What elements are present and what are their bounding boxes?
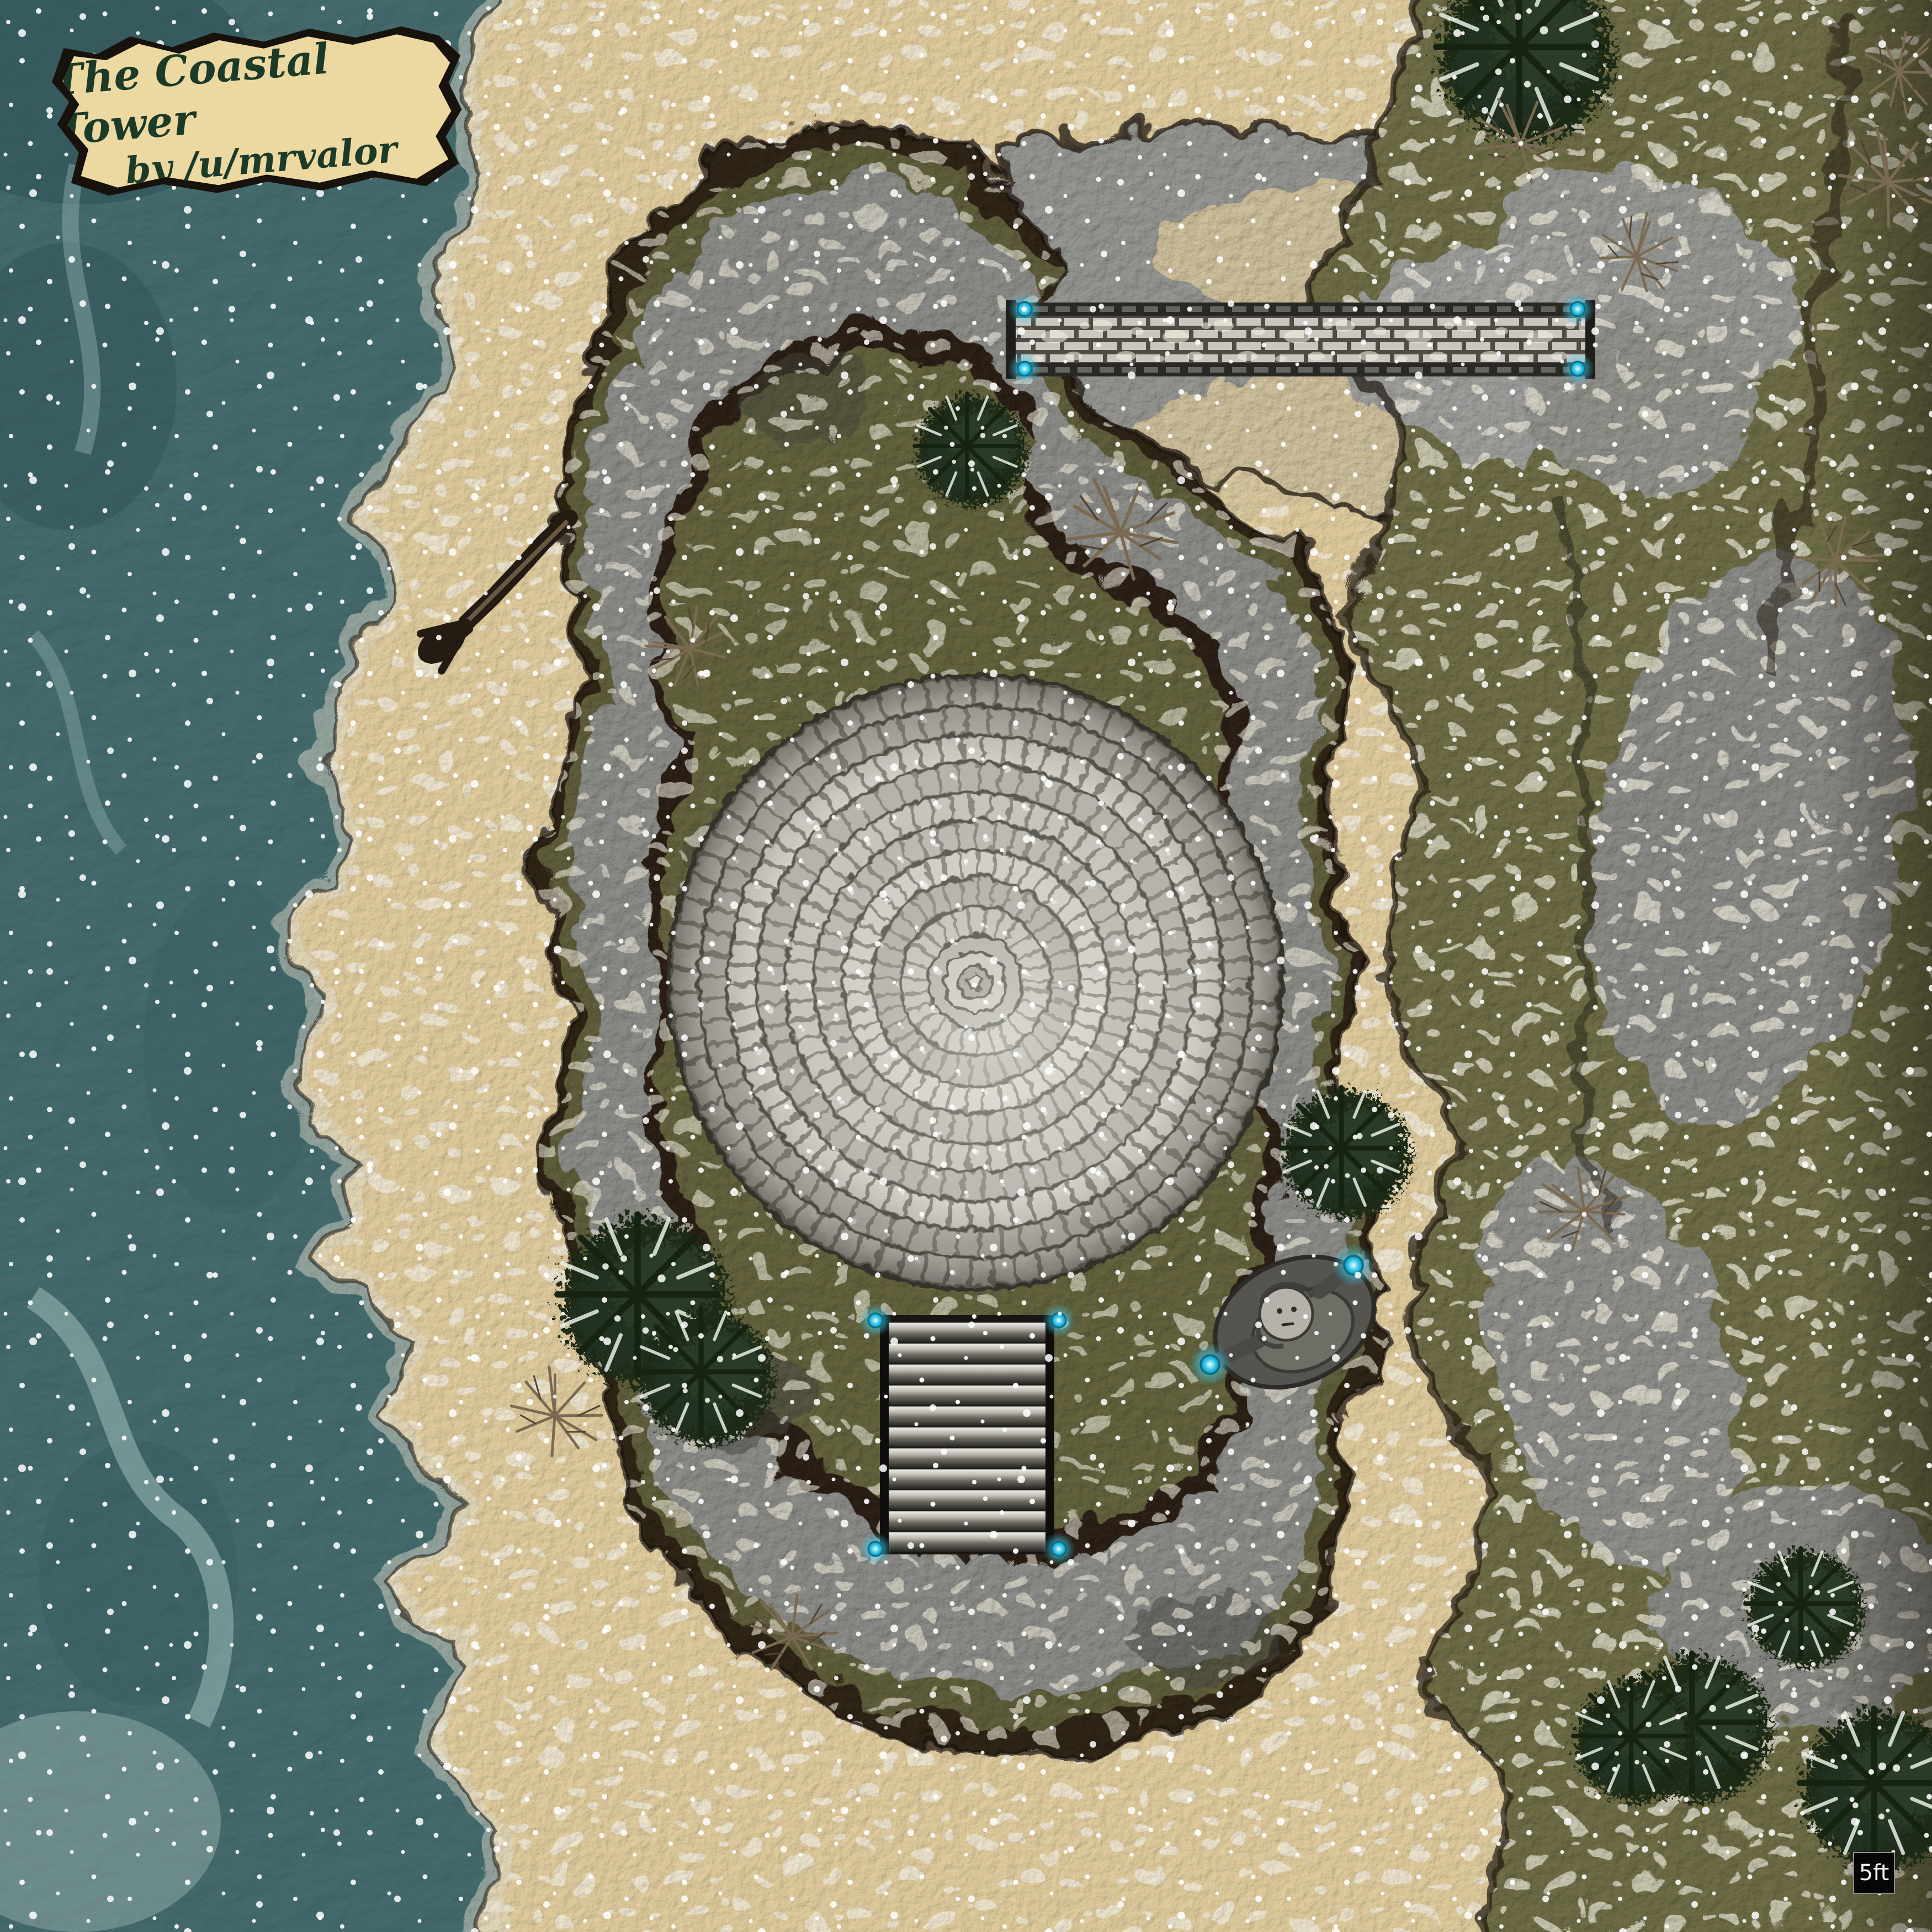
title-banner: The Coastal Tower by /u/mrvalor (46, 22, 468, 200)
snowfall-overlay (0, 0, 1932, 1932)
battle-map-screenshot: { "banner": { "title": "The Coastal Towe… (0, 0, 1932, 1932)
scale-label: 5ft (1859, 1860, 1889, 1886)
snow-dots-large (0, 0, 1932, 1932)
scale-marker: 5ft (1853, 1852, 1895, 1894)
map-artwork (0, 0, 1932, 1932)
